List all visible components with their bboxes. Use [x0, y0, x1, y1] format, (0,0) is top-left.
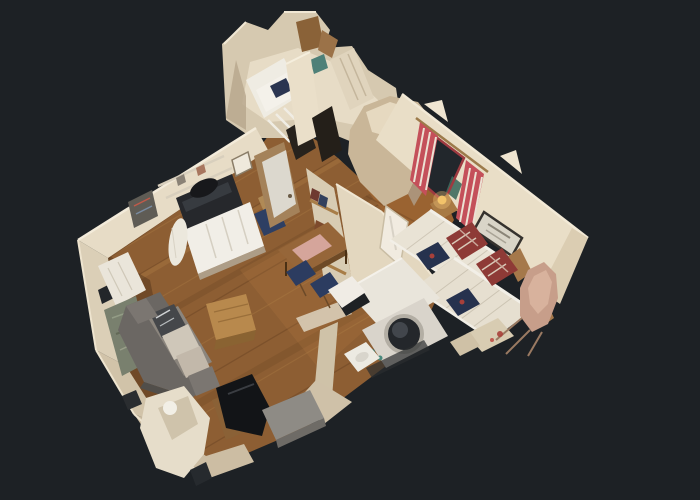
red-bit [497, 331, 503, 337]
washing-machine-glass-sheen [392, 322, 408, 338]
door-knob [288, 194, 292, 198]
navy-bag-accent [460, 300, 465, 305]
dollhouse-canvas[interactable] [0, 0, 700, 500]
bedside-lamp [438, 196, 447, 205]
red-bit [490, 338, 494, 342]
armchair-pillow [163, 401, 177, 415]
tour-viewer [0, 0, 700, 500]
navy-bag-accent [430, 254, 435, 259]
